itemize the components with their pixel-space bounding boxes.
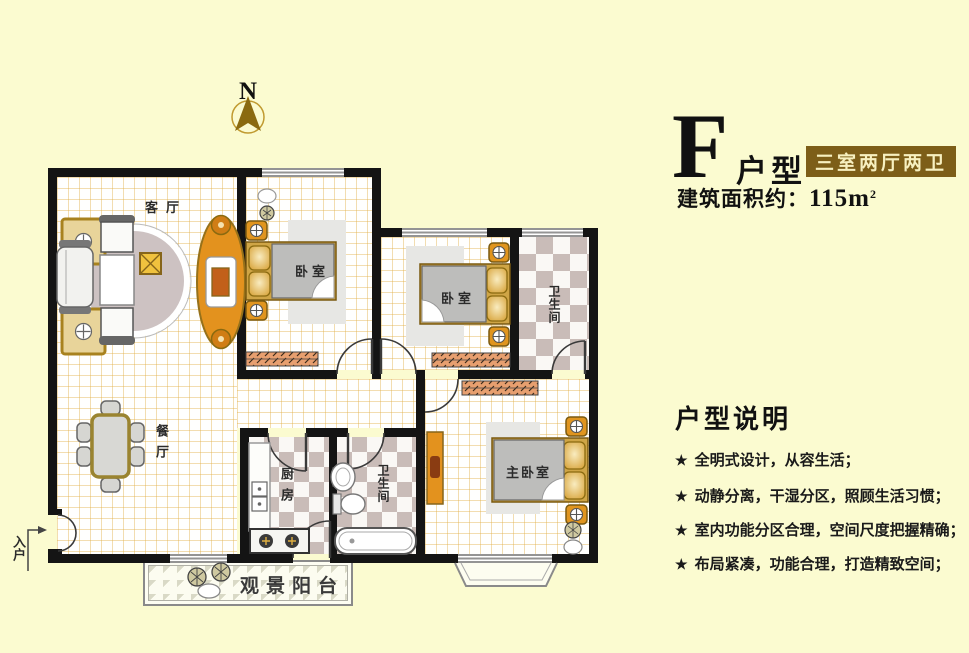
balcony-plants bbox=[188, 563, 230, 598]
compass-north-label: N bbox=[239, 78, 257, 106]
description-title: 户型说明 bbox=[675, 399, 791, 436]
entrance-label: 入户 bbox=[9, 535, 28, 561]
star-icon: ★ bbox=[675, 452, 688, 468]
chair bbox=[99, 308, 135, 345]
armchair bbox=[62, 309, 105, 354]
living-room-label: 客厅 bbox=[145, 197, 187, 216]
kitchen-label: 厨房 bbox=[277, 467, 296, 509]
description-item: ★全明式设计，从容生活； bbox=[675, 449, 860, 470]
description-item-text: 全明式设计，从容生活； bbox=[695, 452, 860, 469]
area-label: 建筑面积约： bbox=[677, 188, 809, 211]
balcony-label: 观景阳台 bbox=[240, 571, 344, 598]
plan-type-letter: F bbox=[672, 100, 728, 192]
star-icon: ★ bbox=[675, 488, 688, 504]
description-item-text: 室内功能分区合理，空间尺度把握精确； bbox=[695, 522, 965, 539]
dining-set bbox=[77, 401, 144, 492]
dining-room-label: 餐厅 bbox=[152, 424, 171, 466]
entrance-arrow-icon bbox=[28, 526, 47, 571]
tv-console bbox=[197, 216, 245, 349]
description-item: ★布局紧凑，功能合理，打造精致空间； bbox=[675, 553, 950, 574]
bath2-fixtures bbox=[331, 463, 416, 554]
sofa bbox=[57, 240, 93, 314]
bedroom1-label: 卧室 bbox=[295, 261, 329, 280]
star-icon: ★ bbox=[675, 522, 688, 538]
description-item-text: 布局紧凑，功能合理，打造精致空间； bbox=[695, 556, 950, 573]
description-item: ★动静分离，干湿分区，照顾生活习惯； bbox=[675, 485, 950, 506]
bedroom2-label: 卧室 bbox=[441, 288, 475, 307]
description-item: ★室内功能分区合理，空间尺度把握精确； bbox=[675, 519, 965, 540]
bath1-label: 卫生间 bbox=[546, 285, 563, 324]
side-table bbox=[140, 253, 161, 274]
master-bedroom-label: 主卧室 bbox=[506, 462, 551, 481]
area-value: 115m bbox=[809, 185, 870, 212]
layout-badge: 三室两厅两卫 bbox=[806, 146, 956, 177]
star-icon: ★ bbox=[675, 556, 688, 572]
bay-window bbox=[455, 563, 557, 586]
description-item-text: 动静分离，干湿分区，照顾生活习惯； bbox=[695, 488, 950, 505]
area-text: 建筑面积约：115m2 bbox=[677, 183, 877, 213]
coffee-table bbox=[100, 255, 134, 305]
chair bbox=[99, 215, 135, 252]
bath2-label: 卫生间 bbox=[375, 464, 392, 503]
area-superscript: 2 bbox=[870, 187, 877, 201]
floorplan-page: F 户型 三室两厅两卫 建筑面积约：115m2 户型说明 ★全明式设计，从容生活… bbox=[0, 0, 969, 653]
